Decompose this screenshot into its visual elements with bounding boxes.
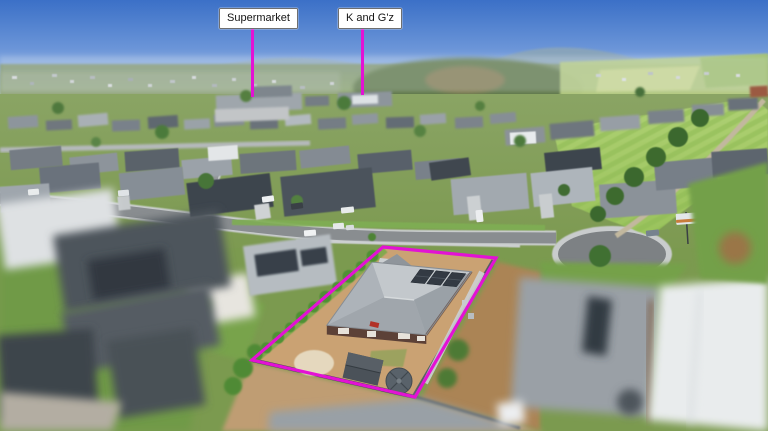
distant-building bbox=[108, 84, 112, 87]
house-roof bbox=[117, 195, 130, 210]
house-roof bbox=[8, 115, 39, 129]
house-roof bbox=[750, 86, 768, 98]
tree bbox=[514, 135, 526, 147]
tree bbox=[437, 368, 457, 388]
neighbor-roof-white bbox=[648, 278, 768, 431]
house-roof bbox=[252, 85, 292, 97]
distant-building bbox=[596, 74, 601, 77]
distant-building bbox=[148, 84, 152, 87]
house-roof bbox=[600, 115, 641, 132]
house-roof bbox=[455, 116, 484, 128]
window bbox=[367, 331, 376, 337]
neighbor-water-tank bbox=[617, 389, 643, 415]
tree bbox=[447, 339, 469, 361]
distant-building bbox=[300, 86, 305, 89]
tree bbox=[91, 137, 101, 147]
distant-building bbox=[70, 80, 74, 83]
tree bbox=[558, 184, 570, 196]
distant-building bbox=[676, 76, 680, 79]
distant-building bbox=[12, 76, 17, 79]
garden-bed bbox=[719, 232, 751, 264]
pointer-line-supermarket bbox=[251, 27, 254, 97]
distant-building bbox=[272, 80, 276, 83]
foreground-shed bbox=[106, 328, 205, 419]
house-roof bbox=[386, 117, 414, 129]
window bbox=[398, 333, 410, 339]
distant-building bbox=[622, 78, 626, 81]
distant-building bbox=[52, 74, 57, 77]
house-roof bbox=[352, 95, 378, 105]
distant-building bbox=[192, 76, 196, 79]
window bbox=[417, 336, 425, 341]
tree bbox=[155, 125, 169, 139]
distant-building bbox=[170, 80, 175, 83]
house-roof bbox=[305, 96, 329, 107]
foreground-roof-white bbox=[497, 400, 526, 425]
distant-building bbox=[212, 84, 217, 87]
house-roof bbox=[239, 150, 296, 174]
tree bbox=[589, 245, 611, 267]
car bbox=[304, 230, 316, 237]
house-roof bbox=[318, 117, 347, 129]
house-roof bbox=[254, 203, 271, 220]
tree bbox=[646, 147, 666, 167]
car bbox=[475, 210, 483, 223]
house-roof bbox=[184, 118, 210, 129]
distant-building bbox=[232, 78, 236, 81]
label-supermarket: Supermarket bbox=[219, 8, 298, 29]
house-roof bbox=[352, 113, 379, 125]
house-roof bbox=[648, 109, 685, 124]
tree bbox=[368, 233, 376, 241]
house-roof bbox=[539, 193, 554, 218]
tree bbox=[635, 87, 645, 97]
tree bbox=[414, 125, 426, 137]
house-roof bbox=[208, 145, 239, 161]
distant-building bbox=[704, 72, 709, 75]
tree bbox=[337, 96, 351, 110]
label-k-and-gz: K and G'z bbox=[338, 8, 402, 29]
distant-building bbox=[128, 78, 133, 81]
tree bbox=[590, 206, 606, 222]
water-tank-cap bbox=[397, 379, 402, 384]
distant-building bbox=[90, 76, 95, 79]
aerial-photo: Supermarket K and G'z bbox=[0, 0, 768, 431]
car bbox=[333, 223, 344, 230]
car bbox=[118, 190, 129, 197]
tree bbox=[691, 109, 709, 127]
tree bbox=[52, 102, 64, 114]
car bbox=[346, 225, 354, 231]
house-roof bbox=[451, 173, 530, 215]
distant-building bbox=[648, 72, 653, 75]
distant-building bbox=[30, 82, 34, 85]
house-roof bbox=[728, 97, 759, 111]
distant-building bbox=[736, 74, 740, 77]
house-roof bbox=[420, 113, 447, 125]
tree bbox=[606, 187, 624, 205]
tree bbox=[475, 101, 485, 111]
tree bbox=[624, 167, 644, 187]
tree bbox=[668, 127, 688, 147]
scene-svg bbox=[0, 0, 768, 431]
house-roof bbox=[46, 119, 72, 130]
house-roof bbox=[215, 107, 289, 123]
pointer-line-k-and-gz bbox=[361, 27, 364, 95]
tree bbox=[198, 173, 214, 189]
bush bbox=[224, 377, 242, 395]
house-roof bbox=[112, 120, 140, 132]
distant-building bbox=[330, 82, 334, 85]
ac-unit bbox=[468, 313, 474, 319]
window bbox=[338, 328, 349, 334]
car bbox=[28, 189, 39, 196]
